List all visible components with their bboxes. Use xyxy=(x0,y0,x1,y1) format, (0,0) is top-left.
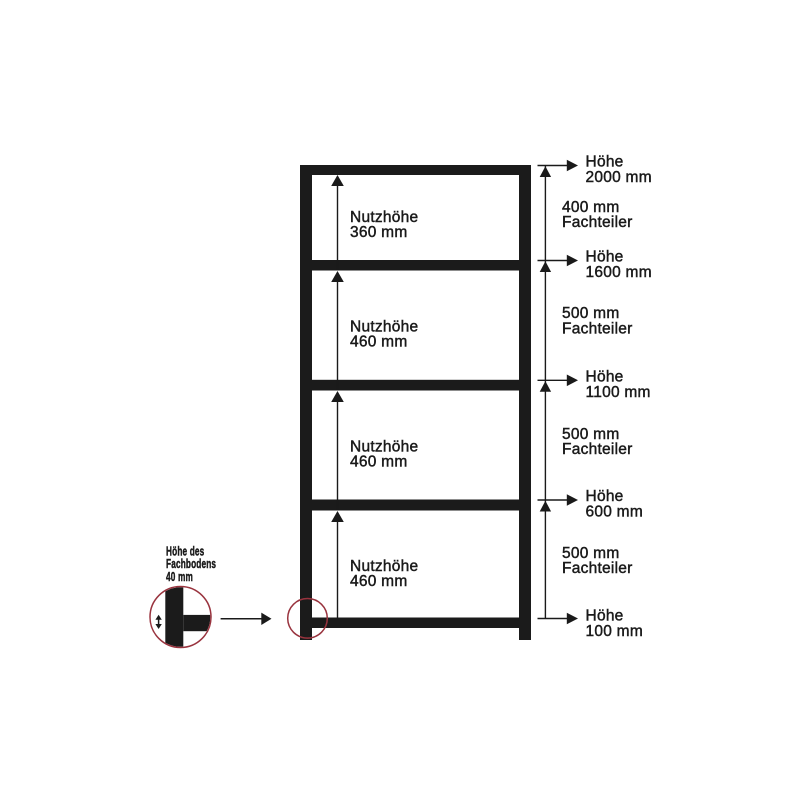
svg-text:Fachteiler: Fachteiler xyxy=(562,321,633,338)
svg-text:360 mm: 360 mm xyxy=(350,224,408,241)
svg-text:460 mm: 460 mm xyxy=(350,454,408,471)
svg-text:100 mm: 100 mm xyxy=(586,623,644,640)
svg-text:Höhe: Höhe xyxy=(586,154,624,171)
svg-text:2000 mm: 2000 mm xyxy=(586,169,652,186)
svg-text:Fachteiler: Fachteiler xyxy=(562,214,633,231)
svg-text:600 mm: 600 mm xyxy=(586,504,644,521)
svg-text:1100 mm: 1100 mm xyxy=(586,384,651,401)
svg-text:40 mm: 40 mm xyxy=(166,570,193,584)
svg-text:Höhe: Höhe xyxy=(586,488,624,505)
svg-text:Fachteiler: Fachteiler xyxy=(562,441,633,458)
svg-text:Höhe: Höhe xyxy=(586,368,624,385)
svg-text:500 mm: 500 mm xyxy=(562,305,620,322)
svg-text:Höhe: Höhe xyxy=(586,608,624,625)
svg-text:Höhe: Höhe xyxy=(586,249,624,266)
svg-text:1600 mm: 1600 mm xyxy=(586,264,652,281)
svg-text:460 mm: 460 mm xyxy=(350,573,408,590)
svg-text:Fachteiler: Fachteiler xyxy=(562,560,633,577)
svg-text:460 mm: 460 mm xyxy=(350,334,408,351)
